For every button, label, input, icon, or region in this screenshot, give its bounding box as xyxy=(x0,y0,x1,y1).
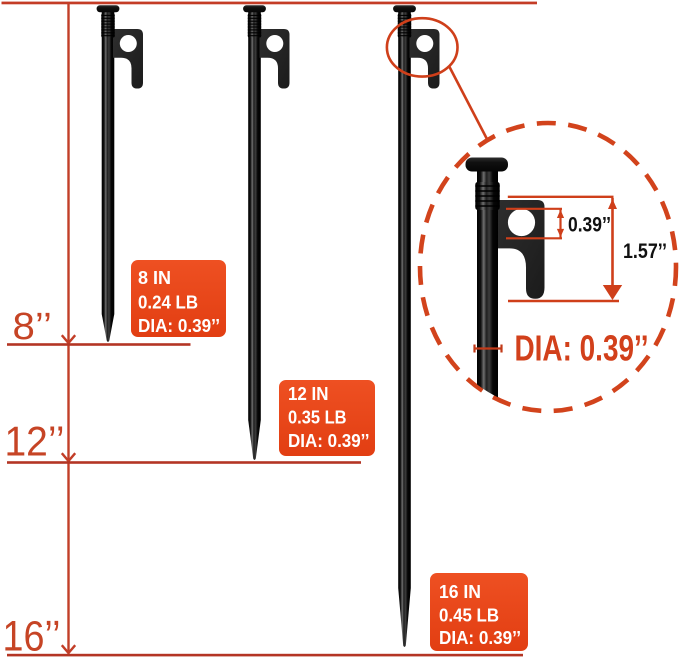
svg-text:DIA: 0.39’’: DIA: 0.39’’ xyxy=(288,431,370,451)
svg-text:16 IN: 16 IN xyxy=(439,582,481,602)
svg-text:8 IN: 8 IN xyxy=(138,268,171,288)
svg-text:0.45 LB: 0.45 LB xyxy=(439,606,499,626)
svg-text:DIA: 0.39’’: DIA: 0.39’’ xyxy=(515,328,649,369)
svg-text:0.39’’: 0.39’’ xyxy=(568,214,611,237)
svg-text:8’’: 8’’ xyxy=(13,306,53,348)
svg-text:1.57’’: 1.57’’ xyxy=(623,240,667,263)
svg-text:DIA: 0.39’’: DIA: 0.39’’ xyxy=(439,628,521,648)
svg-text:12’’: 12’’ xyxy=(5,418,65,465)
svg-text:0.35 LB: 0.35 LB xyxy=(288,408,347,428)
svg-text:12 IN: 12 IN xyxy=(288,384,329,404)
svg-text:0.24 LB: 0.24 LB xyxy=(138,293,198,313)
svg-text:16’’: 16’’ xyxy=(3,613,61,661)
svg-text:DIA: 0.39’’: DIA: 0.39’’ xyxy=(138,316,220,336)
